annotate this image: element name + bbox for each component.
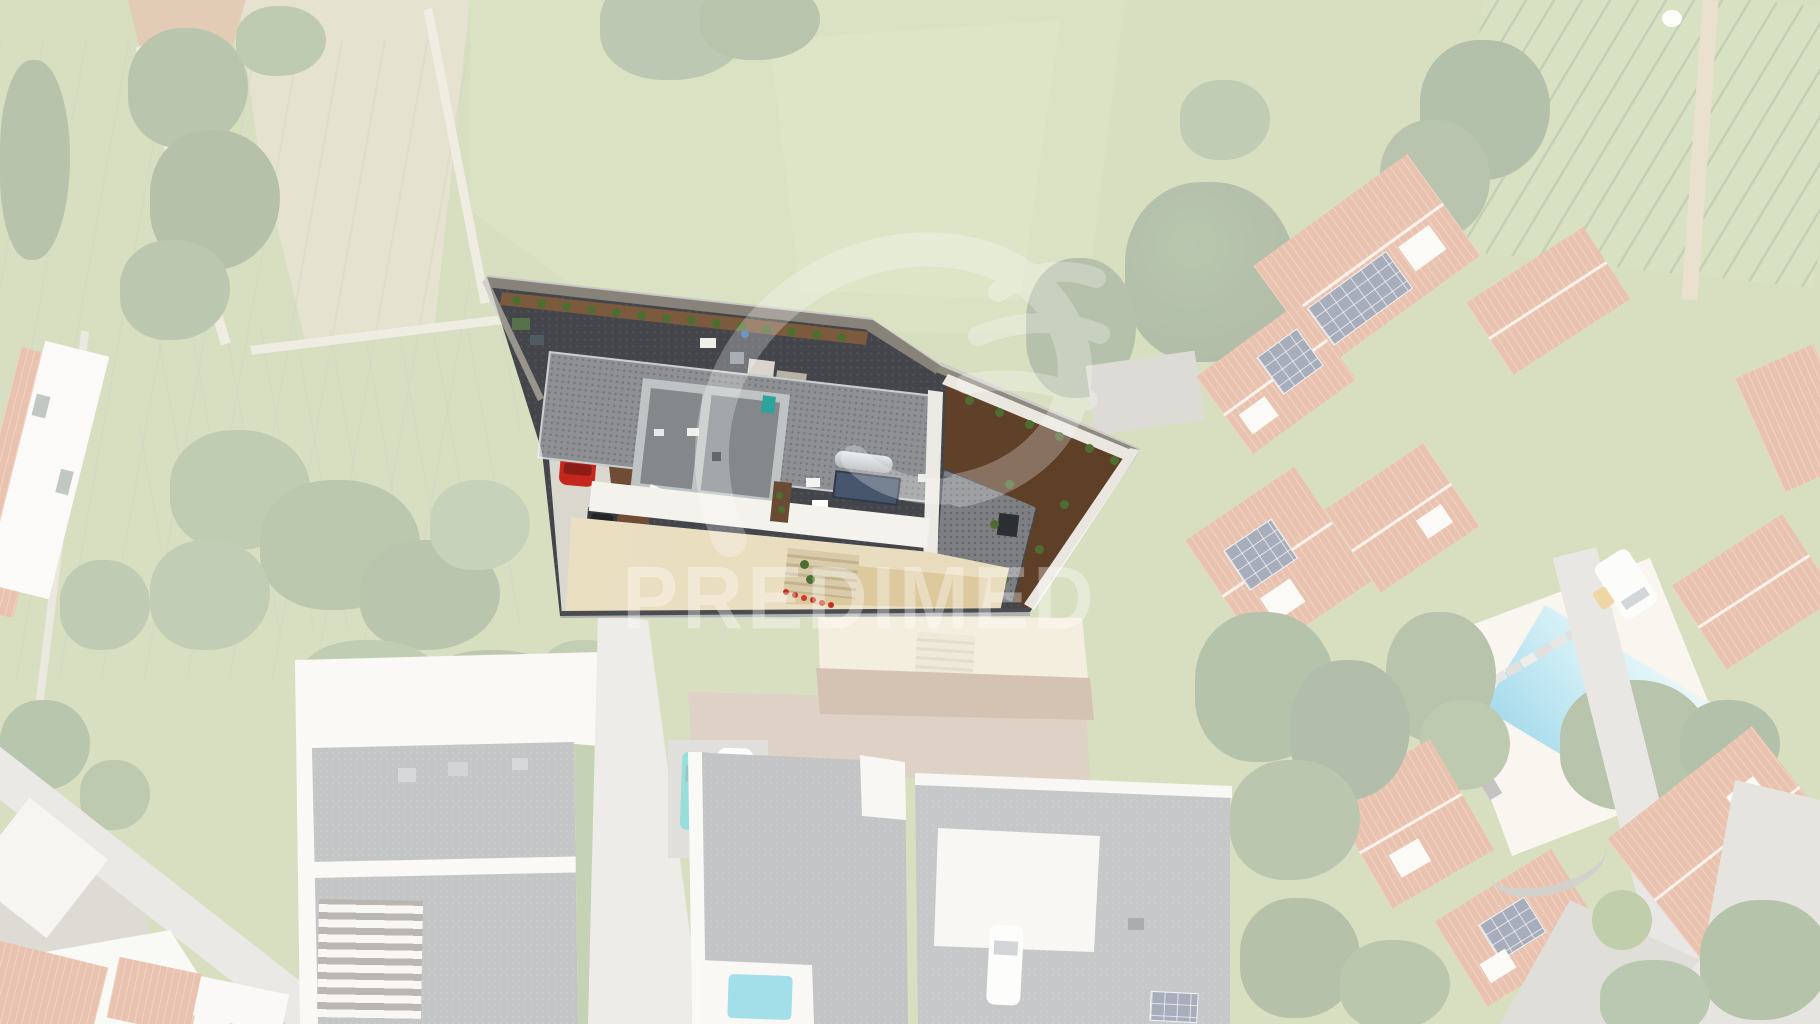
predimed-flourish-logo: [668, 196, 1138, 576]
watermark-text: PREDIMED: [560, 553, 1160, 642]
aerial-photo-stage: PREDIMED: [0, 0, 1820, 1024]
